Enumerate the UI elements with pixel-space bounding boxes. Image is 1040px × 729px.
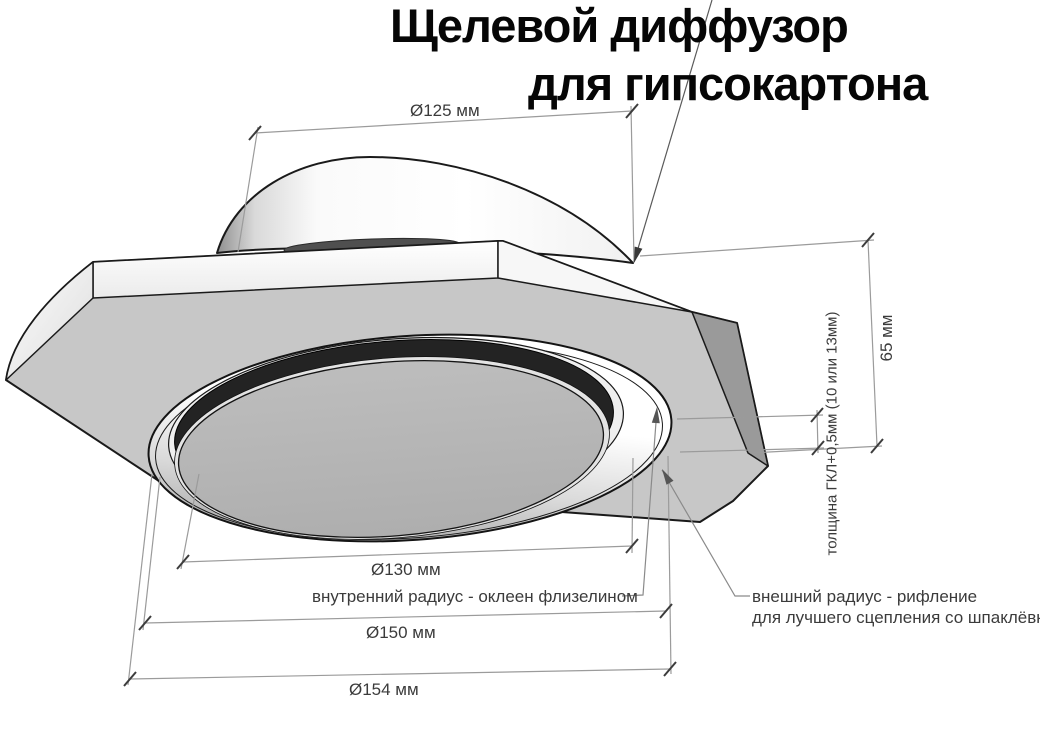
note-outer-radius-line2: для лучшего сцепления со шпаклёвкой bbox=[752, 607, 1040, 628]
dim-thickness-line bbox=[817, 410, 818, 453]
dim-label-125: Ø125 мм bbox=[410, 101, 480, 121]
dim-65-line bbox=[868, 240, 877, 446]
note-outer-radius-line1: внешний радиус - рифление bbox=[752, 586, 1040, 607]
technical-drawing: Щелевой диффузор для гипсокартона Ø125 м… bbox=[0, 0, 1040, 729]
dim-154-line bbox=[130, 669, 670, 679]
dim-150-ext-left bbox=[143, 477, 160, 630]
dim-label-65: 65 мм bbox=[877, 298, 897, 378]
dim-label-thickness: толщина ГКЛ+0,5мм (10 или 13мм) bbox=[824, 309, 841, 559]
dim-65-ext-top bbox=[640, 240, 874, 256]
note-inner-radius: внутренний радиус - оклеен флизелином bbox=[312, 587, 638, 607]
dim-125-ext-right bbox=[631, 106, 634, 262]
dim-label-150: Ø150 мм bbox=[366, 623, 436, 643]
note-outer-radius: внешний радиус - рифление для лучшего сц… bbox=[752, 586, 1040, 628]
dim-150-line bbox=[145, 611, 666, 623]
dim-label-154: Ø154 мм bbox=[349, 680, 419, 700]
drawing-title-line2: для гипсокартона bbox=[528, 60, 927, 107]
dim-label-130: Ø130 мм bbox=[371, 560, 441, 580]
arrow-title-leader bbox=[634, 247, 642, 263]
drawing-title-line1: Щелевой диффузор bbox=[390, 2, 848, 49]
